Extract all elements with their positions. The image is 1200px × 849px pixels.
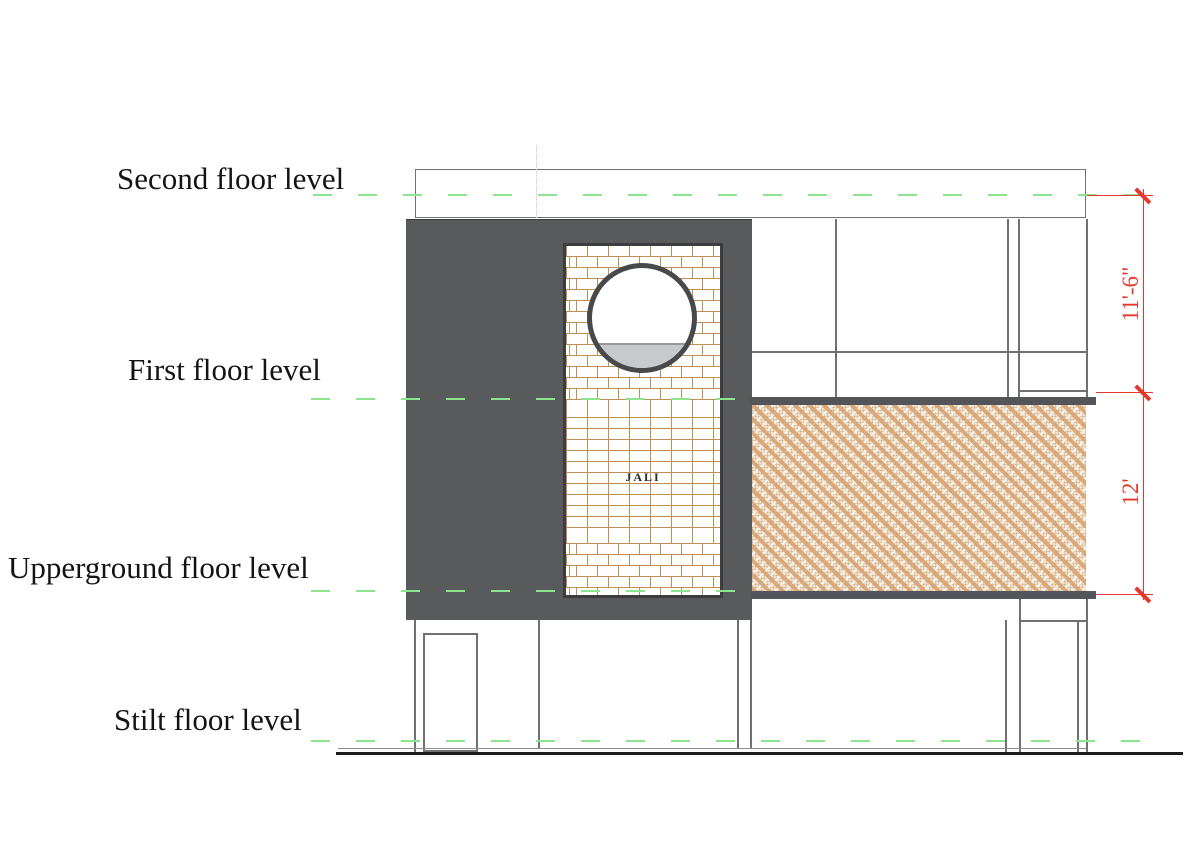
stilt-column bbox=[1077, 620, 1079, 752]
brick-row bbox=[566, 400, 720, 407]
window-glass-segment bbox=[592, 343, 692, 368]
wall-line bbox=[835, 219, 837, 397]
first-floor-slab-band bbox=[750, 397, 1096, 405]
level-line-second-floor bbox=[313, 194, 1143, 196]
stilt-column bbox=[750, 620, 752, 749]
level-line-upperground-floor bbox=[311, 590, 751, 592]
floor-level-label-upperground: Upperground floor level bbox=[8, 552, 309, 585]
beam-line bbox=[1019, 620, 1087, 622]
brick-row bbox=[566, 533, 720, 544]
rattan-screen-panel bbox=[752, 405, 1086, 591]
circular-window bbox=[587, 263, 697, 373]
door-opening bbox=[423, 633, 478, 752]
level-line-stilt-floor bbox=[311, 740, 1143, 742]
brick-row bbox=[566, 246, 720, 257]
stilt-column bbox=[1005, 620, 1007, 752]
grid-line-dotted bbox=[536, 145, 537, 220]
stilt-column bbox=[737, 620, 739, 749]
wall-line bbox=[1007, 219, 1009, 397]
brick-row bbox=[566, 544, 720, 555]
brick-row bbox=[566, 418, 720, 429]
brick-row bbox=[566, 555, 720, 566]
brick-row bbox=[566, 517, 720, 528]
stilt-floor-line bbox=[338, 748, 1086, 749]
dimension-label-second-to-first: 11'-6" bbox=[1117, 229, 1145, 359]
stilt-column bbox=[538, 620, 540, 749]
parapet-line bbox=[752, 351, 1087, 353]
brick-row bbox=[566, 407, 720, 418]
parapet-step-line bbox=[1018, 390, 1087, 392]
brick-row bbox=[566, 451, 720, 462]
floor-level-label-stilt: Stilt floor level bbox=[114, 704, 302, 737]
stilt-column bbox=[1086, 599, 1088, 752]
brick-row bbox=[566, 429, 720, 440]
floor-level-label-first: First floor level bbox=[128, 354, 321, 387]
stilt-column bbox=[1019, 599, 1021, 752]
brick-row bbox=[566, 566, 720, 577]
brick-row bbox=[566, 378, 720, 389]
elevation-canvas: JALI 11'-6" 12' Second floor level First… bbox=[0, 0, 1200, 849]
level-line-first-floor bbox=[311, 398, 751, 400]
brick-row bbox=[566, 577, 720, 588]
ground-line bbox=[336, 752, 1183, 755]
stilt-column bbox=[414, 620, 416, 752]
dimension-label-first-to-upperground: 12' bbox=[1117, 427, 1145, 557]
floor-level-label-second: Second floor level bbox=[117, 163, 344, 196]
brick-row bbox=[566, 484, 720, 495]
brick-row bbox=[566, 440, 720, 451]
brick-row bbox=[566, 495, 720, 506]
jali-annotation: JALI bbox=[563, 470, 723, 485]
brick-section-running-bottom bbox=[566, 533, 720, 595]
wall-line bbox=[1018, 219, 1020, 397]
brick-row bbox=[566, 506, 720, 517]
wall-edge-line bbox=[1086, 219, 1088, 397]
upperground-slab-band bbox=[750, 591, 1096, 599]
